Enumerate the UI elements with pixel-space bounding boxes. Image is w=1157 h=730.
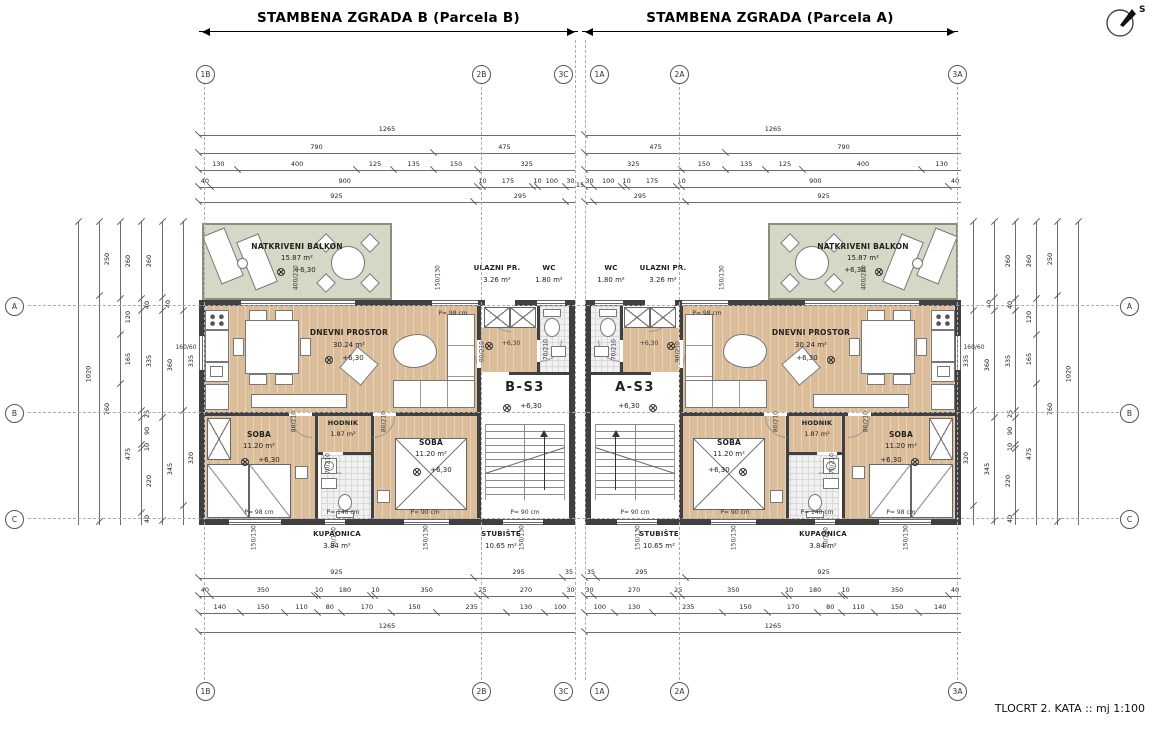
coffee-table (723, 334, 767, 368)
dim-segment: 1265 (585, 124, 961, 136)
dim-segment: 235 (653, 602, 723, 614)
dim-col: 40360345 (162, 222, 174, 525)
dim-segment: 110 (285, 602, 318, 614)
room-area-wc: 1.80 m² (529, 276, 569, 284)
dim-segment: 335 (1004, 311, 1016, 411)
dim-row: 1265 (585, 124, 961, 136)
dim-segment (962, 506, 974, 525)
room-label-bedroom2: SOBA (689, 438, 769, 447)
dim-segment: 475 (434, 142, 575, 154)
dim-segment: 1265 (585, 621, 961, 633)
dim-col: 250760 (1046, 222, 1058, 525)
wall (537, 362, 540, 372)
dim-segment: 475 (1025, 384, 1037, 525)
dim-segment: 150 (392, 602, 437, 614)
dim-segment: 150 (682, 159, 727, 171)
nightstand (295, 466, 308, 479)
room-level-bedroom1: +6,30 (871, 456, 911, 464)
level-marker (649, 404, 657, 412)
side-table (912, 258, 923, 269)
room-area-bedroom1: 11.20 m² (861, 442, 941, 450)
wardrobe (207, 418, 231, 460)
dim-row: 4035010180103502527030 (585, 585, 961, 597)
chair (249, 374, 267, 385)
level-marker (277, 268, 285, 276)
door-size-label: 80/210 (772, 405, 779, 439)
dim-segment: 335 (141, 311, 153, 411)
grid-bubble-right-b: B (1120, 404, 1139, 423)
grid-bubble-right-c: C (1120, 510, 1139, 529)
kitchen-window (955, 336, 961, 370)
dim-segment: 295 (474, 191, 566, 203)
stove (931, 310, 955, 330)
unit-plan: NATKRIVENI BALKON 15.87 m² +6,30 400/220… (199, 222, 575, 525)
dim-segment: 295 (594, 191, 686, 203)
door-size-label: 70/210 (828, 447, 835, 481)
room-area-corridor: 1.87 m² (315, 431, 371, 439)
coffee-table (393, 334, 437, 368)
grid-line-2b (481, 82, 482, 680)
window-size-label: 90/130 (330, 521, 337, 555)
sofa (393, 380, 475, 408)
unit-b-container: NATKRIVENI BALKON 15.87 m² +6,30 400/220… (199, 222, 575, 525)
dim-segment: 350 (211, 585, 315, 597)
room-area-entrance: 3.26 m² (465, 276, 529, 284)
parapet-label: P= 98 cm (423, 310, 483, 317)
dim-segment: 40 (1004, 513, 1016, 525)
unit-plan: NATKRIVENI BALKON 15.87 m² +6,30 400/220… (585, 222, 961, 525)
dim-segment (162, 222, 174, 298)
hall-floor (481, 328, 537, 372)
parapet-label: P= 98 cm (871, 509, 931, 516)
unit-code: B-S3 (487, 380, 563, 396)
room-label-corridor: HODNIK (789, 420, 845, 428)
dim-row: 92529535 (585, 567, 961, 579)
room-label-balcony: NATKRIVENI BALKON (227, 242, 367, 251)
room-area-bedroom2: 11.20 m² (391, 450, 471, 458)
stair-arrow (615, 434, 616, 490)
grid-bubble-bot-1b: 1B (196, 682, 215, 701)
dim-row: 130400125135150325 (585, 159, 961, 171)
toilet-tank (599, 309, 617, 317)
level-marker (503, 404, 511, 412)
balcony-table (795, 246, 829, 280)
room-label-corridor: HODNIK (315, 420, 371, 428)
dim-segment: 135 (726, 159, 766, 171)
chair (275, 310, 293, 321)
room-level-balcony: +6,30 (835, 266, 875, 274)
room-area-bedroom1: 11.20 m² (219, 442, 299, 450)
wall (620, 306, 623, 340)
dim-col: 260120165475 (120, 222, 132, 525)
window-size-label: 160/60 (171, 344, 201, 351)
dim-segment: 10 (785, 585, 789, 597)
dim-segment: 10 (842, 585, 846, 597)
dim-segment: 150 (241, 602, 286, 614)
level-marker (827, 356, 835, 364)
dim-segment: 1265 (199, 124, 575, 136)
drawing-caption: TLOCRT 2. KATA :: mj 1:100 (995, 702, 1145, 715)
parapet-label: P= 90 cm (603, 509, 667, 516)
door-size-label: 90/210 (478, 335, 485, 369)
room-area-living: 30.24 m² (761, 341, 861, 349)
dim-segment: 250 (99, 222, 111, 296)
room-area-staircase: 10.65 m² (461, 542, 541, 550)
dim-row: 14015011080170150235130100 (199, 602, 575, 614)
kitchen-counter (931, 330, 955, 362)
chair (867, 374, 885, 385)
dim-segment: 250 (1046, 222, 1058, 296)
dim-segment: 400 (803, 159, 922, 171)
room-area-entrance: 3.26 m² (631, 276, 695, 284)
wardrobe (624, 307, 650, 328)
room-area-staircase: 10.65 m² (619, 542, 699, 550)
grid-line-row-c (28, 518, 1129, 519)
dim-segment: 475 (120, 384, 132, 525)
room-label-bedroom1: SOBA (219, 430, 299, 439)
dim-segment: 30 (585, 585, 594, 597)
dim-col: 250760 (99, 222, 111, 525)
grid-line-3c (575, 40, 576, 680)
sideboard (813, 394, 909, 408)
chair (916, 338, 927, 356)
parapet-label: P= 90 cm (493, 509, 557, 516)
door-size-label: 90/210 (674, 335, 681, 369)
window-size-label: 150/130 (730, 521, 737, 555)
parapet-label: P= 90 cm (393, 509, 457, 516)
dim-segment (99, 522, 111, 525)
dim-segment: 295 (474, 567, 563, 579)
dim-col: 260120165475 (1025, 222, 1037, 525)
fridge (205, 384, 229, 410)
floor-plan-canvas: STAMBENA ZGRADA B (Parcela B) STAMBENA Z… (0, 0, 1157, 730)
dim-segment (162, 521, 174, 525)
grid-bubble-top-1b: 1B (196, 65, 215, 84)
dim-segment: 260 (1025, 222, 1037, 299)
room-label-living: DNEVNI PROSTOR (279, 328, 419, 337)
dim-segment: 320 (183, 411, 195, 506)
unit-level: +6,30 (511, 402, 551, 410)
dim-segment: 335 (183, 311, 195, 411)
title-arrow-a (582, 31, 958, 32)
dim-segment: 40 (949, 176, 961, 188)
chair (233, 338, 244, 356)
dim-segment: 125 (766, 159, 803, 171)
dim-row: 925295 (585, 191, 961, 203)
dim-segment: 165 (120, 335, 132, 384)
dim-segment: 150 (875, 602, 920, 614)
dim-segment: 400 (238, 159, 357, 171)
door-size-label: 80/210 (862, 405, 869, 439)
sink-basin (937, 366, 950, 377)
dim-segment: 345 (162, 418, 174, 520)
grid-line-1b (204, 82, 205, 680)
dim-segment: 100 (545, 602, 575, 614)
washbasin (594, 346, 609, 357)
stair-divider (635, 424, 636, 500)
dim-segment: 320 (962, 411, 974, 506)
dim-col: 1020 (78, 222, 90, 525)
dim-segment: 760 (99, 296, 111, 522)
level-marker (325, 356, 333, 364)
dim-segment: 140 (199, 602, 241, 614)
window-size-label: 90/130 (822, 521, 829, 555)
grid-bubble-left-c: C (5, 510, 24, 529)
dim-segment: 35 (585, 567, 597, 579)
dim-segment: 360 (162, 311, 174, 418)
chair (893, 374, 911, 385)
door-size-label: 70/210 (324, 447, 331, 481)
kitchen-counter (205, 330, 229, 362)
dim-segment: 900 (211, 176, 479, 188)
room-label-balcony: NATKRIVENI BALKON (793, 242, 933, 251)
room-level-bedroom1: +6,30 (249, 456, 289, 464)
dim-segment: 345 (983, 418, 995, 520)
room-level-living: +6,30 (787, 354, 827, 362)
door-size-label: 70/210 (542, 333, 549, 367)
dim-segment: 130 (922, 159, 961, 171)
dim-segment: 175 (627, 176, 678, 188)
dim-row: 14015011080170150235130100 (585, 602, 961, 614)
dim-segment: 235 (437, 602, 507, 614)
dim-segment: 925 (199, 191, 474, 203)
door-size-label: 80/210 (380, 405, 387, 439)
dim-segment: 925 (199, 567, 474, 579)
sofa (685, 380, 767, 408)
title-building-a: STAMBENA ZGRADA (Parcela A) (582, 10, 958, 26)
level-marker (241, 458, 249, 466)
dim-segment: 165 (1025, 335, 1037, 384)
dim-segment: 270 (594, 585, 674, 597)
dim-row: 40900101751010030 (585, 176, 961, 188)
chair (867, 310, 885, 321)
chair (249, 310, 267, 321)
dim-row: 790475 (585, 142, 961, 154)
grid-bubble-bot-3c: 3C (554, 682, 573, 701)
wall (789, 452, 817, 455)
nightstand (852, 466, 865, 479)
level-marker (739, 468, 747, 476)
dim-segment: 90 (1004, 418, 1016, 445)
dim-segment: 760 (1046, 296, 1058, 522)
dim-segment: 325 (478, 159, 575, 171)
wall (620, 362, 623, 372)
dim-row: 40900101751010030 (199, 176, 575, 188)
level-marker (485, 342, 493, 350)
dim-segment: 110 (842, 602, 875, 614)
window-size-label: 150/130 (518, 521, 525, 555)
grid-line-row-b (28, 412, 1129, 413)
dim-segment: 40 (949, 585, 961, 597)
wall (343, 452, 371, 455)
hall-floor (623, 328, 679, 372)
level-marker (413, 468, 421, 476)
dim-segment: 150 (434, 159, 479, 171)
dim-col: 335320 (183, 222, 195, 525)
dim-segment: 350 (682, 585, 785, 597)
room-area-bedroom2: 11.20 m² (689, 450, 769, 458)
room-label-wc: WC (529, 264, 569, 272)
dim-segment: 220 (141, 449, 153, 513)
dim-row: 4035010180103502527030 (199, 585, 575, 597)
toilet-tank (543, 309, 561, 317)
dim-segment: 135 (394, 159, 434, 171)
stair-arrow (544, 434, 545, 490)
room-level-bedroom2: +6,30 (699, 466, 739, 474)
wall (591, 372, 651, 375)
wall (537, 306, 540, 340)
room-area-corridor: 1.87 m² (789, 431, 845, 439)
chair (275, 374, 293, 385)
unit-code: A-S3 (597, 380, 673, 396)
room-area-wc: 1.80 m² (591, 276, 631, 284)
dim-segment: 220 (1004, 449, 1016, 513)
dim-label-mid: 15 (566, 182, 594, 190)
grid-bubble-top-3a: 3A (948, 65, 967, 84)
dim-segment: 40 (141, 513, 153, 525)
grid-line-1a (585, 40, 586, 680)
room-label-living: DNEVNI PROSTOR (741, 328, 881, 337)
dim-segment: 125 (357, 159, 394, 171)
grid-line-row-a (28, 305, 1129, 306)
dim-segment: 30 (566, 585, 575, 597)
dim-segment (983, 521, 995, 525)
dim-segment (183, 222, 195, 311)
nightstand (377, 490, 390, 503)
dim-segment: 100 (585, 602, 615, 614)
dim-segment: 1265 (199, 621, 575, 633)
dim-col: 2604033525901022040 (141, 222, 153, 525)
parapet-label: P= 140 cm (785, 509, 849, 516)
level-marker (911, 458, 919, 466)
grid-bubble-top-3c: 3C (554, 65, 573, 84)
parapet-label: P= 140 cm (311, 509, 375, 516)
dim-segment: 900 (682, 176, 950, 188)
dim-segment: 140 (919, 602, 961, 614)
dim-row: 1265 (199, 124, 575, 136)
room-level-living: +6,30 (333, 354, 373, 362)
window-size-label: 400/220 (292, 261, 299, 295)
dim-col: 2604033525901022040 (1004, 222, 1016, 525)
grid-bubble-bot-3a: 3A (948, 682, 967, 701)
hall-level: +6,30 (493, 340, 529, 347)
grid-line-2a (679, 82, 680, 680)
unit-level: +6,30 (609, 402, 649, 410)
sink-basin (210, 366, 223, 377)
room-level-bedroom2: +6,30 (421, 466, 461, 474)
grid-bubble-left-a: A (5, 297, 24, 316)
dim-row: 925295 (199, 191, 575, 203)
parapet-label: P= 98 cm (677, 310, 737, 317)
room-label-staircase: STUBIŠTE (461, 530, 541, 538)
wardrobe (510, 307, 536, 328)
grid-bubble-top-1a: 1A (590, 65, 609, 84)
stairs (485, 424, 565, 500)
dim-row: 92529535 (199, 567, 575, 579)
wall (837, 452, 842, 455)
dim-segment: 925 (686, 191, 961, 203)
dim-segment: 475 (585, 142, 726, 154)
dim-segment: 360 (983, 311, 995, 418)
parapet-label: P= 98 cm (229, 509, 289, 516)
dim-row: 790475 (199, 142, 575, 154)
dim-segment (183, 506, 195, 525)
grid-bubble-bot-2b: 2B (472, 682, 491, 701)
sideboard (251, 394, 347, 408)
dim-row: 130400125135150325 (199, 159, 575, 171)
dim-segment: 335 (962, 311, 974, 411)
window-size-label: 150/130 (250, 521, 257, 555)
stair-divider (524, 424, 525, 500)
hall-level: +6,30 (631, 340, 667, 347)
title-building-b: STAMBENA ZGRADA B (Parcela B) (199, 10, 578, 26)
wardrobe (929, 418, 953, 460)
room-area-living: 30.24 m² (299, 341, 399, 349)
grid-bubble-bot-1a: 1A (590, 682, 609, 701)
window-size-label: 160/60 (959, 344, 989, 351)
grid-line-3a (957, 82, 958, 680)
fridge (931, 384, 955, 410)
window-size-label: 400/220 (860, 261, 867, 295)
dim-segment: 10 (622, 176, 626, 188)
dim-segment: 80 (818, 602, 842, 614)
room-label-entrance: ULAZNI PR. (465, 264, 529, 272)
unit-a-container: NATKRIVENI BALKON 15.87 m² +6,30 400/220… (585, 222, 961, 525)
dim-segment: 350 (845, 585, 949, 597)
dim-row: 1265 (585, 621, 961, 633)
dim-segment: 35 (563, 567, 575, 579)
dim-segment: 180 (789, 585, 842, 597)
grid-bubble-top-2b: 2B (472, 65, 491, 84)
dim-segment: 925 (686, 567, 961, 579)
stove (205, 310, 229, 330)
dim-segment: 260 (120, 222, 132, 299)
room-label-staircase: STUBIŠTE (619, 530, 699, 538)
chair (893, 310, 911, 321)
grid-bubble-top-2a: 2A (670, 65, 689, 84)
window-size-label: 150/130 (902, 521, 909, 555)
grid-bubble-left-b: B (5, 404, 24, 423)
room-label-bedroom1: SOBA (861, 430, 941, 439)
door-size-label: 80/210 (290, 405, 297, 439)
dim-segment: 325 (585, 159, 682, 171)
dim-segment: 175 (483, 176, 534, 188)
dim-segment: 130 (507, 602, 546, 614)
wardrobe (484, 307, 510, 328)
dim-segment (983, 222, 995, 298)
dim-col: 40360345 (983, 222, 995, 525)
dim-row: 1265 (199, 621, 575, 633)
stair-arrow-head (612, 426, 620, 437)
door-size-label: 70/210 (610, 333, 617, 367)
window-size-label: 150/130 (634, 521, 641, 555)
room-label-bedroom2: SOBA (391, 438, 471, 447)
dim-segment: 150 (723, 602, 768, 614)
grid-bubble-bot-2a: 2A (670, 682, 689, 701)
dim-segment (585, 191, 594, 203)
dim-segment: 350 (375, 585, 478, 597)
room-label-wc: WC (591, 264, 631, 272)
compass-icon: S (1098, 1, 1152, 47)
dim-segment: 790 (726, 142, 961, 154)
nightstand (770, 490, 783, 503)
window-size-label: 150/130 (422, 521, 429, 555)
parapet-label: P= 90 cm (703, 509, 767, 516)
window-size-label: 150/130 (434, 261, 441, 295)
dim-segment: 790 (199, 142, 434, 154)
dim-segment (962, 222, 974, 311)
wardrobe (650, 307, 676, 328)
